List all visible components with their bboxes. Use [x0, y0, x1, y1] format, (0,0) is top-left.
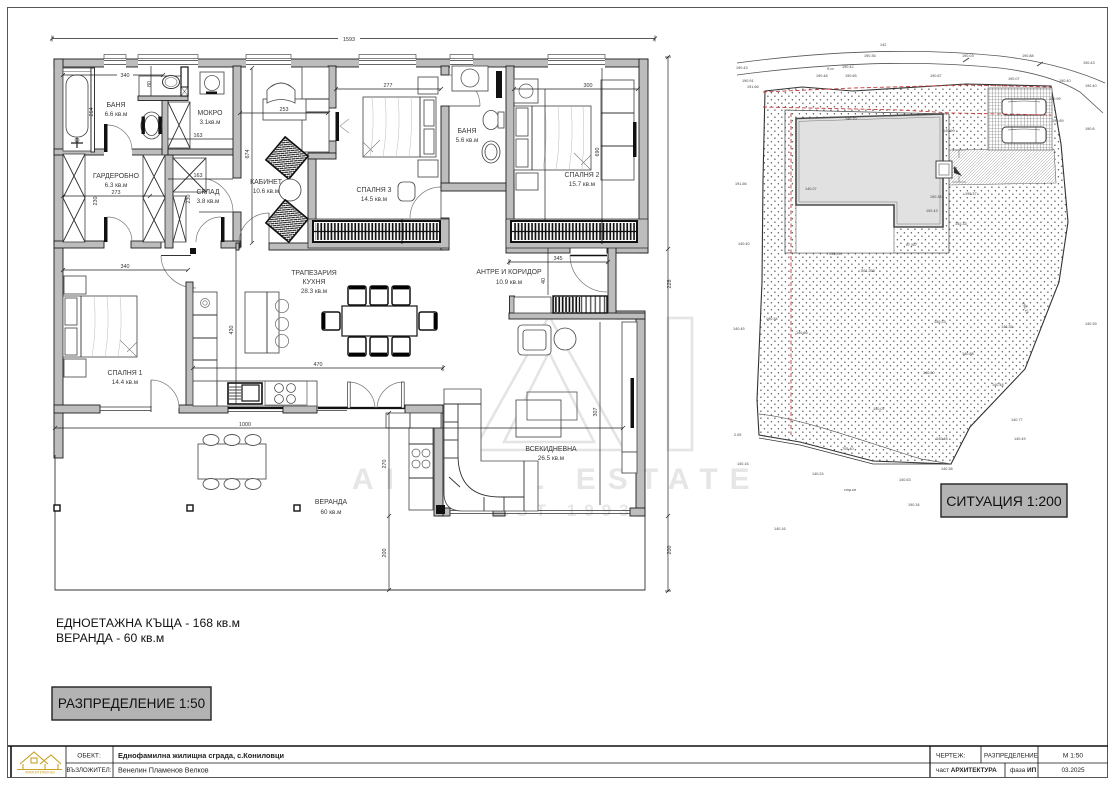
svg-text:340: 340 [121, 264, 130, 270]
svg-text:26.5 кв.м: 26.5 кв.м [538, 455, 564, 462]
svg-text:190.34: 190.34 [908, 503, 920, 507]
svg-text:190.99: 190.99 [1049, 97, 1061, 101]
svg-text:307: 307 [593, 408, 599, 417]
svg-text:501.353: 501.353 [861, 269, 875, 273]
svg-text:140.38: 140.38 [941, 467, 953, 471]
svg-text:430: 430 [229, 326, 235, 335]
svg-text:273: 273 [112, 190, 121, 196]
svg-text:10.9 кв.м: 10.9 кв.м [496, 279, 522, 286]
svg-text:140.88: 140.88 [962, 352, 974, 356]
svg-text:190.88: 190.88 [1022, 54, 1034, 58]
svg-text:ВСЕКИДНЕВНА: ВСЕКИДНЕВНА [525, 446, 577, 453]
svg-text:14.5 кв.м: 14.5 кв.м [361, 196, 387, 203]
svg-text:б.сс: б.сс [827, 67, 834, 71]
svg-text:705.40: 705.40 [842, 447, 854, 451]
svg-text:190.36: 190.36 [864, 54, 876, 58]
svg-text:ЕДНОЕТАЖНА КЪЩА - 168 кв.м: ЕДНОЕТАЖНА КЪЩА - 168 кв.м [56, 616, 240, 630]
svg-text:200: 200 [667, 546, 673, 555]
svg-text:ЧЕРТЕЖ:: ЧЕРТЕЖ: [936, 753, 965, 760]
svg-text:230: 230 [93, 197, 99, 206]
svg-text:1593: 1593 [343, 37, 355, 43]
svg-text:3.8 кв.м: 3.8 кв.м [197, 198, 220, 205]
svg-text:190.40: 190.40 [1059, 79, 1071, 83]
svg-text:277: 277 [384, 83, 393, 89]
svg-text:40: 40 [541, 278, 547, 284]
svg-text:КАБИНЕТ: КАБИНЕТ [250, 179, 283, 186]
svg-text:ВЕРАНДА: ВЕРАНДА [315, 499, 348, 506]
svg-text:190.34: 190.34 [766, 317, 778, 321]
svg-text:190.24: 190.24 [829, 252, 841, 256]
svg-text:АНТРЕ И КОРИДОР: АНТРЕ И КОРИДОР [476, 269, 542, 276]
svg-text:80: 80 [147, 81, 153, 87]
svg-text:140.77: 140.77 [1011, 418, 1023, 422]
svg-text:140.16: 140.16 [774, 527, 786, 531]
svg-text:191.66: 191.66 [735, 182, 747, 186]
svg-text:15.7 кв.м: 15.7 кв.м [569, 181, 595, 188]
svg-text:3.1кв.м: 3.1кв.м [200, 119, 221, 126]
svg-text:190.37: 190.37 [965, 192, 977, 196]
svg-text:190.8: 190.8 [1085, 127, 1095, 131]
svg-text:190.43: 190.43 [736, 66, 748, 70]
svg-text:М 1:50: М 1:50 [1063, 753, 1083, 760]
svg-text:190.40: 190.40 [1085, 84, 1097, 88]
svg-text:191.66: 191.66 [747, 85, 759, 89]
svg-text:140.23: 140.23 [934, 320, 946, 324]
svg-text:14.4 кв.м: 14.4 кв.м [112, 379, 138, 386]
svg-text:кл: кл [953, 166, 957, 170]
svg-text:163: 163 [194, 173, 203, 179]
svg-text:140.40: 140.40 [738, 242, 750, 246]
svg-text:стр.кв: стр.кв [844, 488, 856, 492]
svg-text:140.24: 140.24 [812, 472, 824, 476]
svg-text:470: 470 [314, 362, 323, 368]
svg-text:190.65: 190.65 [845, 74, 857, 78]
svg-text:СИТУАЦИЯ 1:200: СИТУАЦИЯ 1:200 [946, 493, 1062, 509]
svg-text:2.05: 2.05 [734, 433, 741, 437]
svg-text:190.07: 190.07 [1008, 77, 1020, 81]
svg-text:140.45: 140.45 [733, 327, 745, 331]
svg-text:ВЕРАНДА - 60 кв.м: ВЕРАНДА - 60 кв.м [56, 631, 164, 645]
svg-text:СПАЛНЯ 2: СПАЛНЯ 2 [565, 172, 600, 179]
svg-text:200: 200 [382, 549, 388, 558]
svg-text:190.43: 190.43 [1083, 61, 1095, 65]
svg-text:264: 264 [89, 108, 95, 117]
svg-text:140.60: 140.60 [923, 371, 935, 375]
svg-text:140.99: 140.99 [943, 129, 955, 133]
svg-text:03.2025: 03.2025 [1061, 767, 1085, 774]
svg-text:140.49: 140.49 [1014, 437, 1026, 441]
svg-text:340: 340 [121, 73, 130, 79]
svg-text:142: 142 [880, 43, 886, 47]
svg-text:5.6 кв.м: 5.6 кв.м [456, 137, 479, 144]
svg-text:ВЪЗЛОЖИТЕЛ:: ВЪЗЛОЖИТЕЛ: [67, 767, 112, 774]
svg-text:690: 690 [595, 148, 601, 157]
svg-text:270: 270 [382, 460, 388, 469]
svg-text:КУХНЯ: КУХНЯ [302, 279, 325, 286]
svg-text:6.3 кв.м: 6.3 кв.м [105, 182, 128, 189]
svg-text:ОБЕКТ:: ОБЕКТ: [77, 753, 101, 760]
svg-text:фаза ИП: фаза ИП [1010, 767, 1037, 774]
svg-text:10.6 кв.м: 10.6 кв.м [253, 188, 279, 195]
svg-text:IV 307: IV 307 [906, 243, 918, 247]
svg-text:СКЛАД: СКЛАД [196, 189, 219, 196]
svg-text:БАНЯ: БАНЯ [107, 102, 126, 109]
svg-text:190.89: 190.89 [1052, 119, 1064, 123]
svg-text:БАНЯ: БАНЯ [458, 128, 477, 135]
svg-text:РАЗПРЕДЕЛЕНИЕ: РАЗПРЕДЕЛЕНИЕ [984, 753, 1038, 760]
svg-text:192.33: 192.33 [955, 222, 967, 226]
svg-text:1000: 1000 [239, 422, 251, 428]
svg-text:140.07: 140.07 [805, 187, 817, 191]
svg-text:190.91: 190.91 [742, 79, 754, 83]
svg-text:140.07: 140.07 [873, 407, 885, 411]
svg-text:WWW.INTERIER.BG: WWW.INTERIER.BG [25, 771, 56, 775]
svg-text:190.87: 190.87 [930, 74, 942, 78]
svg-text:част АРХИТЕКТУРА: част АРХИТЕКТУРА [936, 767, 997, 774]
svg-text:190.48: 190.48 [816, 74, 828, 78]
svg-text:140.70: 140.70 [845, 117, 857, 121]
svg-text:190.03: 190.03 [962, 54, 974, 58]
svg-text:192.43: 192.43 [926, 209, 938, 213]
svg-text:Венелин Пламенов Велков: Венелин Пламенов Велков [118, 766, 209, 775]
svg-text:230: 230 [186, 195, 192, 204]
svg-text:РАЗПРЕДЕЛЕНИЕ 1:50: РАЗПРЕДЕЛЕНИЕ 1:50 [58, 696, 205, 711]
svg-text:ГАРДЕРОБНО: ГАРДЕРОБНО [93, 173, 140, 180]
svg-text:140.48: 140.48 [936, 437, 948, 441]
svg-text:140.16: 140.16 [737, 462, 749, 466]
svg-text:190.38: 190.38 [930, 195, 942, 199]
svg-text:140.63: 140.63 [899, 478, 911, 482]
svg-text:МОКРО: МОКРО [198, 110, 224, 117]
svg-text:140.66: 140.66 [796, 331, 808, 335]
svg-text:28.3 кв.м: 28.3 кв.м [301, 288, 327, 295]
svg-text:140.39: 140.39 [1085, 322, 1097, 326]
svg-text:140.48: 140.48 [992, 383, 1004, 387]
svg-text:6.6 кв.м: 6.6 кв.м [105, 111, 128, 118]
svg-text:674: 674 [245, 150, 251, 159]
svg-text:190.42: 190.42 [842, 65, 854, 69]
svg-text:228: 228 [667, 280, 673, 289]
svg-text:Еднофамилна жилищна сграда, с.: Еднофамилна жилищна сграда, с.Кониловци [118, 751, 285, 760]
svg-text:140.35: 140.35 [1001, 325, 1013, 329]
svg-text:300: 300 [584, 83, 593, 89]
svg-text:ТРАПЕЗАРИЯ: ТРАПЕЗАРИЯ [291, 270, 337, 277]
svg-text:60 кв.м: 60 кв.м [321, 509, 342, 516]
svg-text:163: 163 [194, 133, 203, 139]
svg-text:СПАЛНЯ 1: СПАЛНЯ 1 [108, 370, 143, 377]
svg-text:253: 253 [280, 107, 289, 113]
svg-text:345: 345 [554, 256, 563, 262]
svg-text:СПАЛНЯ 3: СПАЛНЯ 3 [357, 187, 392, 194]
